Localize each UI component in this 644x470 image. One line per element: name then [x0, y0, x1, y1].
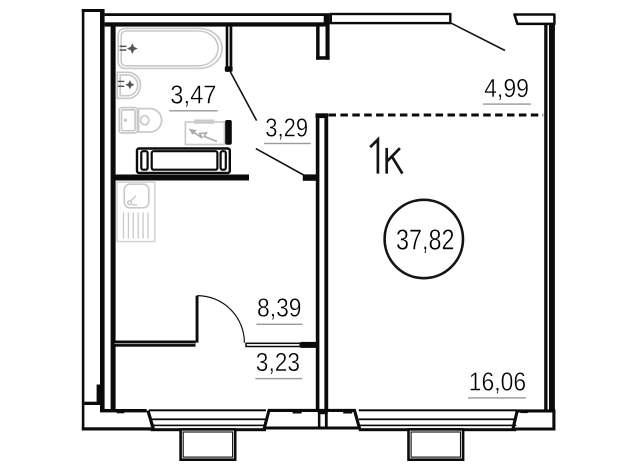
svg-text:16,06: 16,06: [469, 366, 526, 396]
svg-text:3,47: 3,47: [170, 80, 216, 110]
svg-text:3,23: 3,23: [256, 347, 300, 377]
svg-text:4,99: 4,99: [484, 73, 529, 103]
svg-text:8,39: 8,39: [257, 293, 302, 323]
svg-text:37,82: 37,82: [396, 224, 455, 256]
svg-text:3,29: 3,29: [265, 113, 308, 143]
